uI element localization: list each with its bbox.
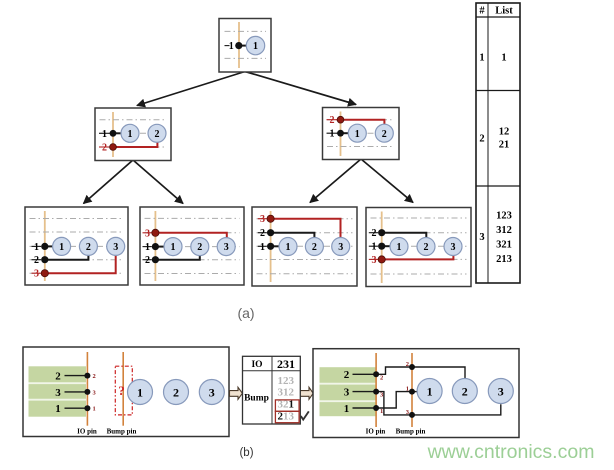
svg-text:2: 2: [55, 371, 61, 383]
svg-text:2: 2: [34, 255, 39, 266]
svg-text:2: 2: [260, 228, 265, 239]
svg-text:1: 1: [102, 129, 107, 140]
svg-text:#: #: [479, 6, 485, 17]
svg-text:Bump pin: Bump pin: [107, 427, 137, 435]
svg-text:2: 2: [406, 361, 409, 368]
svg-text:123: 123: [277, 375, 294, 387]
svg-text:1: 1: [330, 129, 335, 140]
svg-text:312: 312: [277, 387, 294, 399]
svg-text:3: 3: [479, 232, 484, 243]
svg-text:1: 1: [479, 53, 484, 64]
svg-text:1: 1: [380, 408, 383, 415]
svg-text:3: 3: [145, 228, 150, 239]
svg-text:3: 3: [498, 384, 504, 398]
svg-text:(a): (a): [237, 305, 254, 321]
svg-text:www.cntronics.com: www.cntronics.com: [427, 441, 595, 463]
svg-text:3: 3: [34, 269, 39, 280]
svg-text:2: 2: [312, 242, 317, 253]
svg-text:1: 1: [397, 242, 402, 253]
svg-text:IO pin: IO pin: [366, 427, 386, 435]
svg-text:?: ?: [118, 383, 125, 398]
svg-text:1: 1: [34, 242, 39, 253]
svg-text:3: 3: [55, 387, 61, 399]
svg-text:2: 2: [102, 143, 107, 154]
svg-text:2: 2: [145, 255, 150, 266]
svg-text:213: 213: [496, 254, 512, 265]
svg-text:123: 123: [496, 211, 512, 222]
svg-text:3: 3: [338, 242, 343, 253]
svg-text:1: 1: [59, 242, 64, 253]
svg-text:2: 2: [330, 115, 335, 126]
svg-text:1: 1: [501, 53, 506, 64]
svg-text:2: 2: [155, 129, 160, 140]
svg-text:231: 231: [277, 357, 295, 371]
svg-text:2: 2: [382, 129, 387, 140]
svg-text:Bump: Bump: [244, 394, 269, 404]
svg-text:1: 1: [344, 403, 350, 415]
svg-text:1: 1: [355, 129, 360, 140]
svg-text:2: 2: [462, 384, 468, 398]
svg-text:1: 1: [260, 242, 265, 253]
svg-text:2: 2: [173, 385, 179, 399]
svg-text:1: 1: [406, 386, 409, 393]
svg-text:3: 3: [209, 385, 215, 399]
svg-text:3: 3: [260, 214, 265, 225]
svg-text:3: 3: [451, 242, 456, 253]
svg-text:312: 312: [496, 225, 512, 236]
svg-text:IO pin: IO pin: [77, 427, 97, 435]
svg-text:1: 1: [55, 403, 61, 415]
svg-text:2: 2: [479, 134, 484, 145]
svg-text:2: 2: [197, 242, 202, 253]
svg-text:2: 2: [424, 242, 429, 253]
svg-text:(b): (b): [239, 447, 253, 459]
svg-text:1: 1: [145, 242, 150, 253]
svg-text:3: 3: [344, 387, 350, 399]
svg-text:2: 2: [93, 373, 96, 380]
svg-text:3: 3: [372, 255, 377, 266]
svg-text:321: 321: [496, 240, 512, 251]
svg-text:1: 1: [372, 242, 377, 253]
svg-text:1: 1: [229, 41, 234, 52]
svg-text:3: 3: [224, 242, 229, 253]
svg-text:Bump pin: Bump pin: [396, 427, 426, 435]
svg-text:List: List: [495, 6, 513, 17]
svg-text:12: 12: [499, 127, 510, 138]
svg-text:213: 213: [277, 410, 294, 422]
svg-text:1: 1: [93, 406, 96, 413]
svg-text:2: 2: [86, 242, 91, 253]
svg-text:IO: IO: [251, 360, 262, 370]
svg-text:1: 1: [171, 242, 176, 253]
svg-text:2: 2: [344, 369, 350, 381]
svg-text:1: 1: [128, 129, 133, 140]
svg-text:321: 321: [277, 399, 294, 411]
svg-text:1: 1: [253, 41, 258, 52]
svg-text:1: 1: [137, 385, 143, 399]
svg-text:2: 2: [380, 374, 383, 381]
svg-text:1: 1: [286, 242, 291, 253]
svg-text:1: 1: [427, 384, 433, 398]
svg-text:2: 2: [372, 228, 377, 239]
svg-text:21: 21: [499, 140, 510, 151]
svg-text:3: 3: [113, 242, 118, 253]
